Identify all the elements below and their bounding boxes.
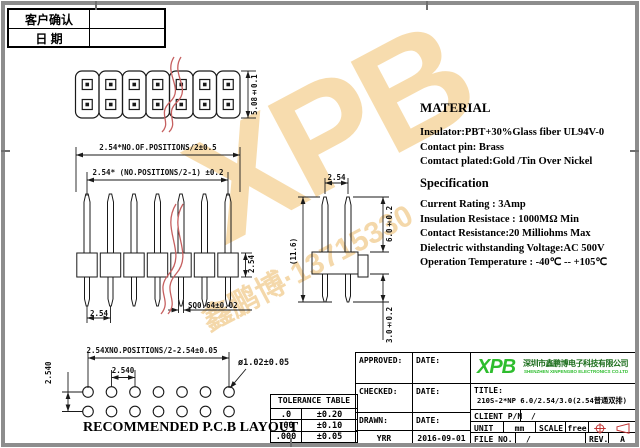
side-view-housing-block — [194, 253, 214, 277]
dim-pcb-pitch: 2.540 — [108, 366, 138, 375]
dim-pin-span: 2.54* (NO.POSITIONS/2-1) ±0.2 — [77, 168, 239, 177]
pcb-hole — [130, 406, 141, 417]
material-heading: MATERIAL — [420, 100, 491, 116]
specification-line: Dielectric withstanding Voltage:AC 500V — [420, 242, 607, 257]
side-view-pin-tail — [85, 277, 90, 306]
title-label: TITLE: — [474, 386, 503, 395]
company-name-en: SHENZHEN XINPENGBO ELECTRONICS CO.LTD — [524, 369, 628, 374]
top-view — [76, 71, 241, 118]
end-view — [312, 197, 368, 302]
dim-row-pitch: 2.54 — [323, 173, 350, 182]
side-view-pin-tail — [132, 277, 137, 306]
pin-core — [203, 83, 207, 87]
tolerance-row: .00±0.10 — [271, 419, 357, 430]
company-row: XPB 深圳市鑫鹏博电子科技有限公司 SHENZHEN XINPENGBO EL… — [471, 353, 636, 384]
customer-confirm-table: 客户确认 日 期 — [7, 8, 166, 48]
side-view-pin — [84, 194, 90, 253]
frame-tick — [1, 150, 10, 152]
side-view-pin-tail — [108, 277, 113, 306]
drawn-by-value: YRR — [356, 431, 413, 444]
pcb-hole — [200, 387, 211, 398]
approved-date-cell: DATE: — [413, 353, 471, 384]
tolerance-precision: .00 — [271, 420, 302, 430]
file-no-label: FILE NO. — [471, 433, 516, 444]
tolerance-row: .000±0.05 — [271, 431, 357, 442]
company-logo: XPB — [477, 356, 515, 379]
frame-tick — [95, 1, 97, 10]
tolerance-precision: .0 — [271, 409, 302, 419]
tolerance-row: .0±0.20 — [271, 408, 357, 419]
tolerance-precision: .000 — [271, 432, 302, 442]
pcb-hole — [153, 406, 164, 417]
pin-core — [179, 103, 183, 107]
pcb-hole — [200, 406, 211, 417]
specification-lines: Current Rating : 3AmpInsulation Resistac… — [420, 198, 607, 271]
pcb-hole — [83, 387, 94, 398]
side-view-pin — [225, 194, 231, 253]
end-view-pin — [322, 197, 328, 252]
pin-core — [226, 103, 230, 107]
drawn-date-cell: DATE: — [413, 413, 471, 431]
side-view-pin-tail — [155, 277, 160, 306]
pin-core — [132, 103, 136, 107]
housing-segment — [146, 71, 170, 118]
title-row: TITLE: 210S-2*NP 6.0/2.54/3.0(2.54普通双排) — [471, 384, 636, 410]
side-view — [77, 194, 238, 306]
tolerance-value: ±0.05 — [302, 432, 357, 442]
client-pn-label: CLIENT P/N — [471, 410, 521, 422]
pin-core — [85, 83, 89, 87]
client-pn-value: / — [521, 410, 636, 422]
tolerance-value: ±0.10 — [302, 420, 357, 430]
side-view-housing-block — [77, 253, 97, 277]
pcb-hole — [224, 406, 235, 417]
specification-line: Current Rating : 3Amp — [420, 198, 607, 213]
side-view-pin — [108, 194, 114, 253]
dim-hole-diameter: ø1.02±0.05 — [238, 358, 289, 368]
checked-cell: CHECKED: — [356, 384, 413, 413]
dim-body-thickness: 2.54 — [247, 247, 259, 281]
pcb-hole — [177, 387, 188, 398]
pcb-hole — [83, 406, 94, 417]
tolerance-value: ±0.20 — [302, 409, 357, 419]
dim-overall-height: (11.6) — [289, 222, 301, 280]
pcb-hole — [177, 406, 188, 417]
pin-core — [156, 103, 160, 107]
confirm-label: 客户确认 — [9, 10, 90, 28]
end-view-pin-tail — [323, 274, 328, 302]
approved-cell: APPROVED: — [356, 353, 413, 384]
part-number: 210S-2*NP 6.0/2.54/3.0(2.54普通双排) — [477, 396, 627, 406]
pin-core — [85, 103, 89, 107]
material-line: Comtact plated:Gold /Tin Over Nickel — [420, 155, 604, 170]
pin-core — [109, 103, 113, 107]
housing-segment — [76, 71, 100, 118]
pin-core — [156, 83, 160, 87]
material-line: Insulator:PBT+30%Glass fiber UL94V-0 — [420, 126, 604, 141]
dim-overall-width: 2.54*NO.OF.POSITIONS/2±0.5 — [78, 143, 238, 152]
company-name-cn: 深圳市鑫鹏博电子科技有限公司 — [523, 358, 628, 369]
end-view-housing — [312, 252, 358, 274]
date-value — [90, 29, 164, 47]
specification-line: Contact Resistance:20 Milliohms Max — [420, 227, 607, 242]
end-view-pin-tail — [346, 274, 351, 302]
side-view-pin — [131, 194, 137, 253]
checked-date-cell: DATE: — [413, 384, 471, 413]
side-view-pin — [202, 194, 208, 253]
drawing-sheet: XPB 鑫鹏博·13715330 客户确认 日 期 — [0, 0, 640, 448]
break-lines — [161, 57, 183, 314]
housing-segment — [99, 71, 123, 118]
rev-label: REV. — [586, 433, 609, 444]
dim-pcb-row-pitch: 2.540 — [44, 357, 56, 389]
unit-value: mm — [504, 422, 536, 433]
side-view-pin — [155, 194, 161, 253]
scale-value: free — [566, 422, 589, 433]
pcb-hole — [153, 387, 164, 398]
specification-heading: Specification — [420, 176, 489, 191]
specification-line: Operation Temperature : -40℃ -- +105℃ — [420, 256, 607, 271]
pin-core — [132, 83, 136, 87]
pcb-holes — [83, 387, 235, 417]
end-view-pin — [345, 197, 351, 252]
side-view-housing-block — [147, 253, 167, 277]
dim-tail-length: 3.0±0.2 — [385, 303, 397, 347]
pcb-hole — [224, 387, 235, 398]
housing-segment — [217, 71, 241, 118]
pin-core — [109, 83, 113, 87]
specification-line: Insulation Resistace : 1000MΩ Min — [420, 213, 607, 228]
pcb-hole — [130, 387, 141, 398]
frame-tick — [630, 150, 639, 152]
pcb-hole — [106, 406, 117, 417]
end-view-housing-step — [358, 255, 368, 277]
date-row: 日 期 — [9, 29, 164, 47]
file-no-value: / — [516, 433, 586, 444]
housing-segment — [193, 71, 217, 118]
confirm-value — [90, 10, 164, 28]
side-view-housing-block — [124, 253, 144, 277]
material-line: Contact pin: Brass — [420, 141, 604, 156]
unit-label: UNIT — [471, 422, 504, 433]
side-view-housing-block — [100, 253, 120, 277]
dim-body-height: 5.08±0.1 — [250, 67, 262, 123]
pin-core — [203, 103, 207, 107]
cone-projection-icon — [617, 423, 629, 432]
title-block: APPROVED: CHECKED: DRAWN: YRR DATE: DATE… — [355, 352, 635, 443]
drawn-date-value: 2016-09-01 — [413, 431, 471, 444]
rev-value: A — [609, 433, 636, 444]
projection-icons — [589, 423, 635, 434]
pcb-layout-caption: RECOMMENDED P.C.B LAYOUT — [83, 420, 298, 436]
pcb-hole — [106, 387, 117, 398]
housing-segment — [123, 71, 147, 118]
side-view-pin-tail — [179, 277, 184, 306]
drawn-cell: DRAWN: — [356, 413, 413, 431]
pin-core — [226, 83, 230, 87]
tolerance-table-title: TOLERANCE TABLE — [271, 395, 357, 408]
projection-symbols-cell — [589, 422, 636, 433]
dim-pcb-span: 2.54XNO.POSITIONS/2-2.54±0.05 — [83, 346, 221, 355]
dim-mating-length: 6.0±0.2 — [385, 198, 397, 250]
date-label: 日 期 — [9, 29, 90, 47]
side-view-housing-block — [218, 253, 238, 277]
frame-tick — [290, 438, 292, 447]
material-lines: Insulator:PBT+30%Glass fiber UL94V-0Cont… — [420, 126, 604, 170]
tolerance-table: TOLERANCE TABLE .0±0.20.00±0.10.000±0.05 — [270, 394, 358, 443]
tolerance-table-rows: .0±0.20.00±0.10.000±0.05 — [271, 408, 357, 442]
dim-pin-pitch: 2.54 — [85, 309, 113, 318]
dim-pin-square: SQ0.64±0.02 — [188, 301, 238, 310]
confirm-row: 客户确认 — [9, 10, 164, 29]
frame-tick — [426, 1, 428, 10]
scale-label: SCALE — [536, 422, 566, 433]
